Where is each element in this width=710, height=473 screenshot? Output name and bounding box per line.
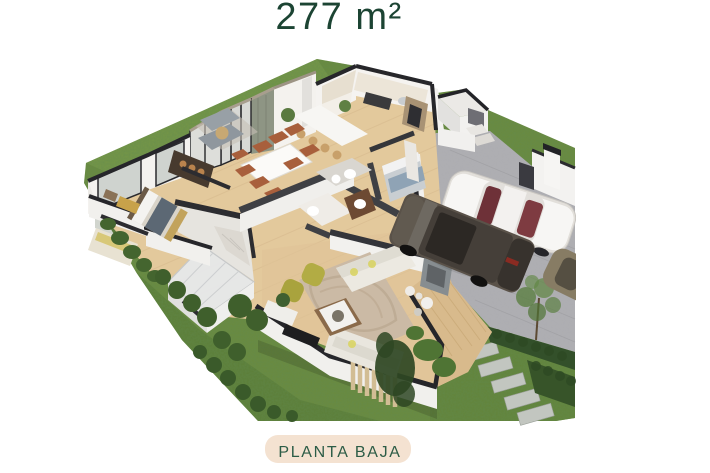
svg-text:277 m²: 277 m² (275, 0, 402, 38)
svg-text:PLANTA BAJA: PLANTA BAJA (278, 444, 401, 461)
